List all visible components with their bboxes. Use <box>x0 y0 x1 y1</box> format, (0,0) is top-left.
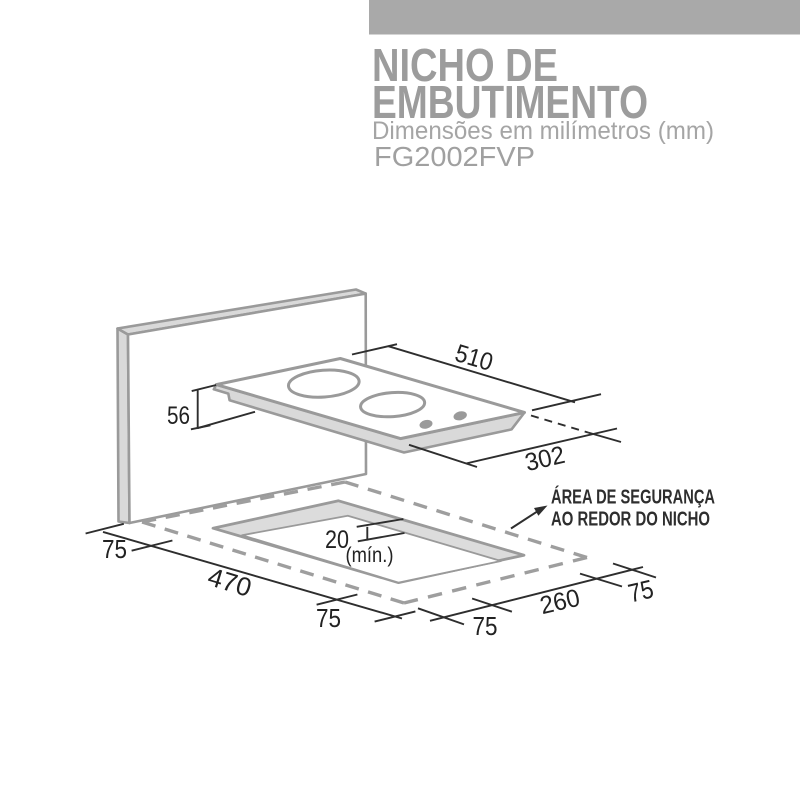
svg-text:AO REDOR DO NICHO: AO REDOR DO NICHO <box>551 508 710 531</box>
svg-text:(mín.): (mín.) <box>346 544 394 567</box>
svg-text:75: 75 <box>316 603 341 633</box>
svg-text:ÁREA DE SEGURANÇA: ÁREA DE SEGURANÇA <box>551 486 715 509</box>
svg-text:75: 75 <box>102 534 127 564</box>
svg-text:56: 56 <box>167 402 190 430</box>
svg-text:FG2002FVP: FG2002FVP <box>374 141 535 172</box>
svg-text:75: 75 <box>473 611 498 641</box>
